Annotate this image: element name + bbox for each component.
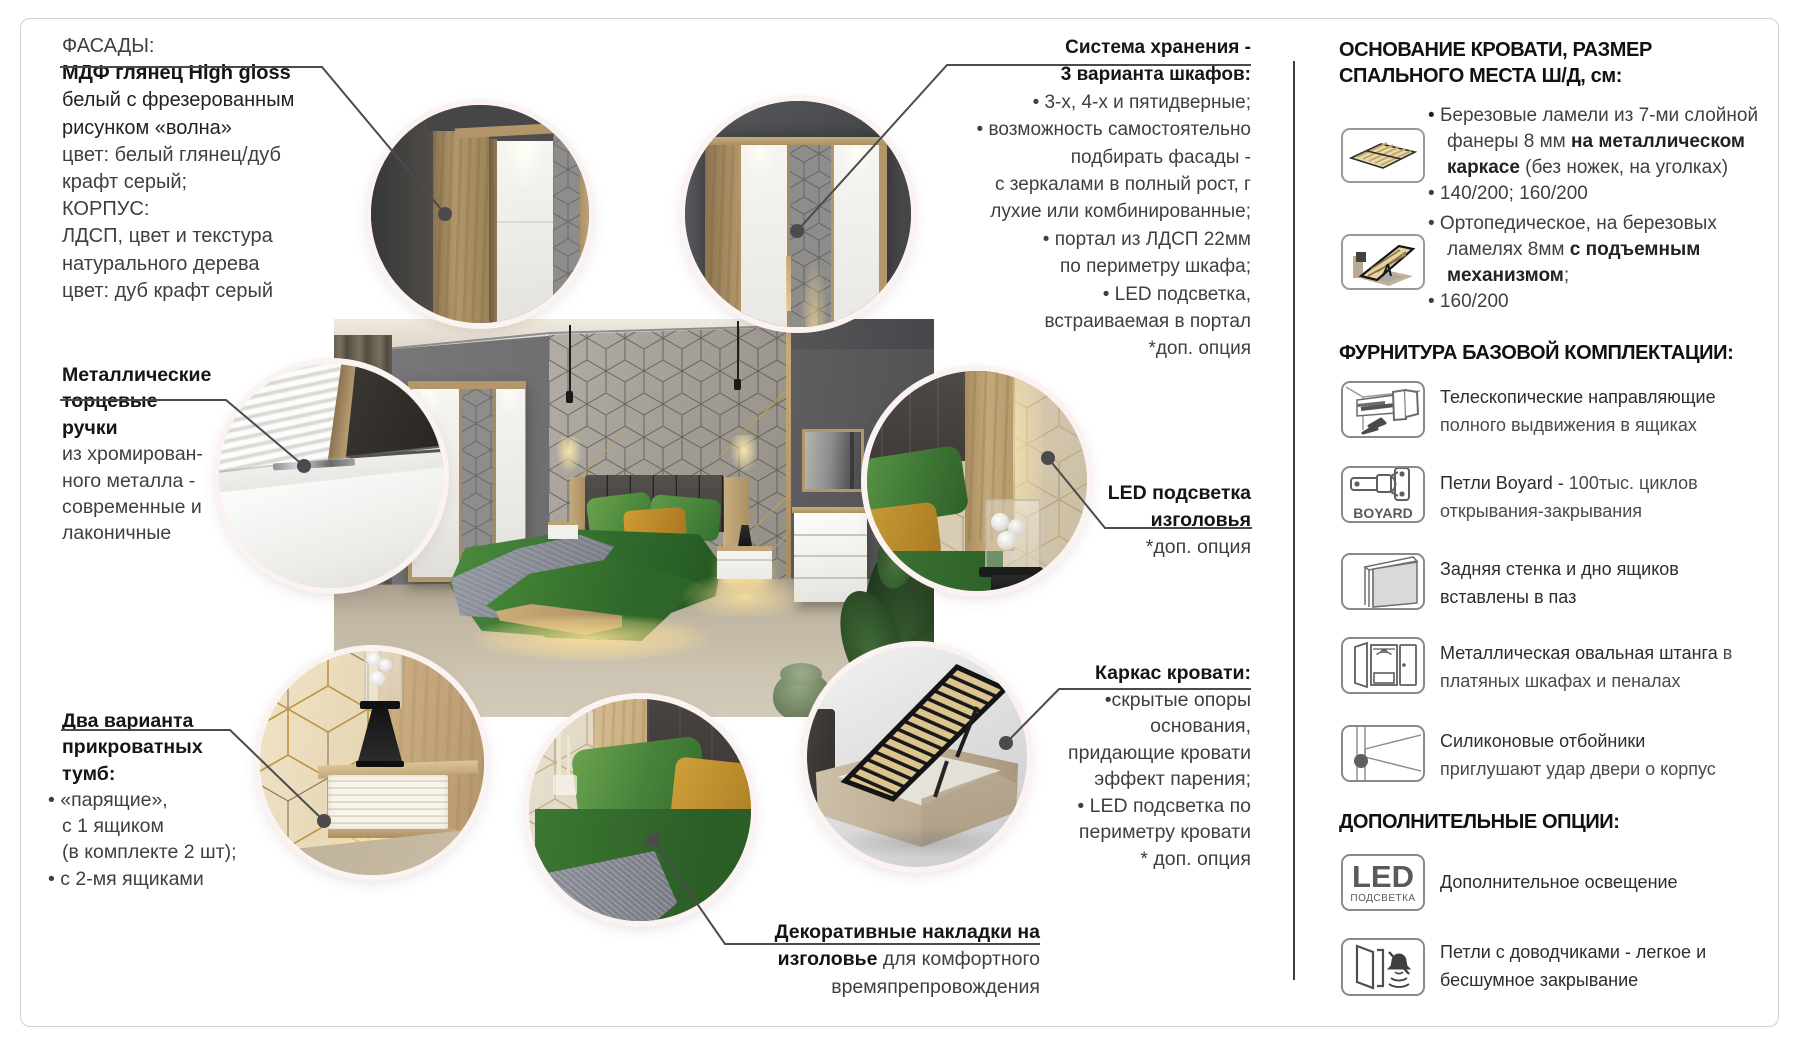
svg-text:LED: LED bbox=[1352, 859, 1414, 894]
svg-text:BOYARD: BOYARD bbox=[1353, 505, 1412, 521]
svg-text:ПОДСВЕТКА: ПОДСВЕТКА bbox=[1350, 893, 1415, 904]
